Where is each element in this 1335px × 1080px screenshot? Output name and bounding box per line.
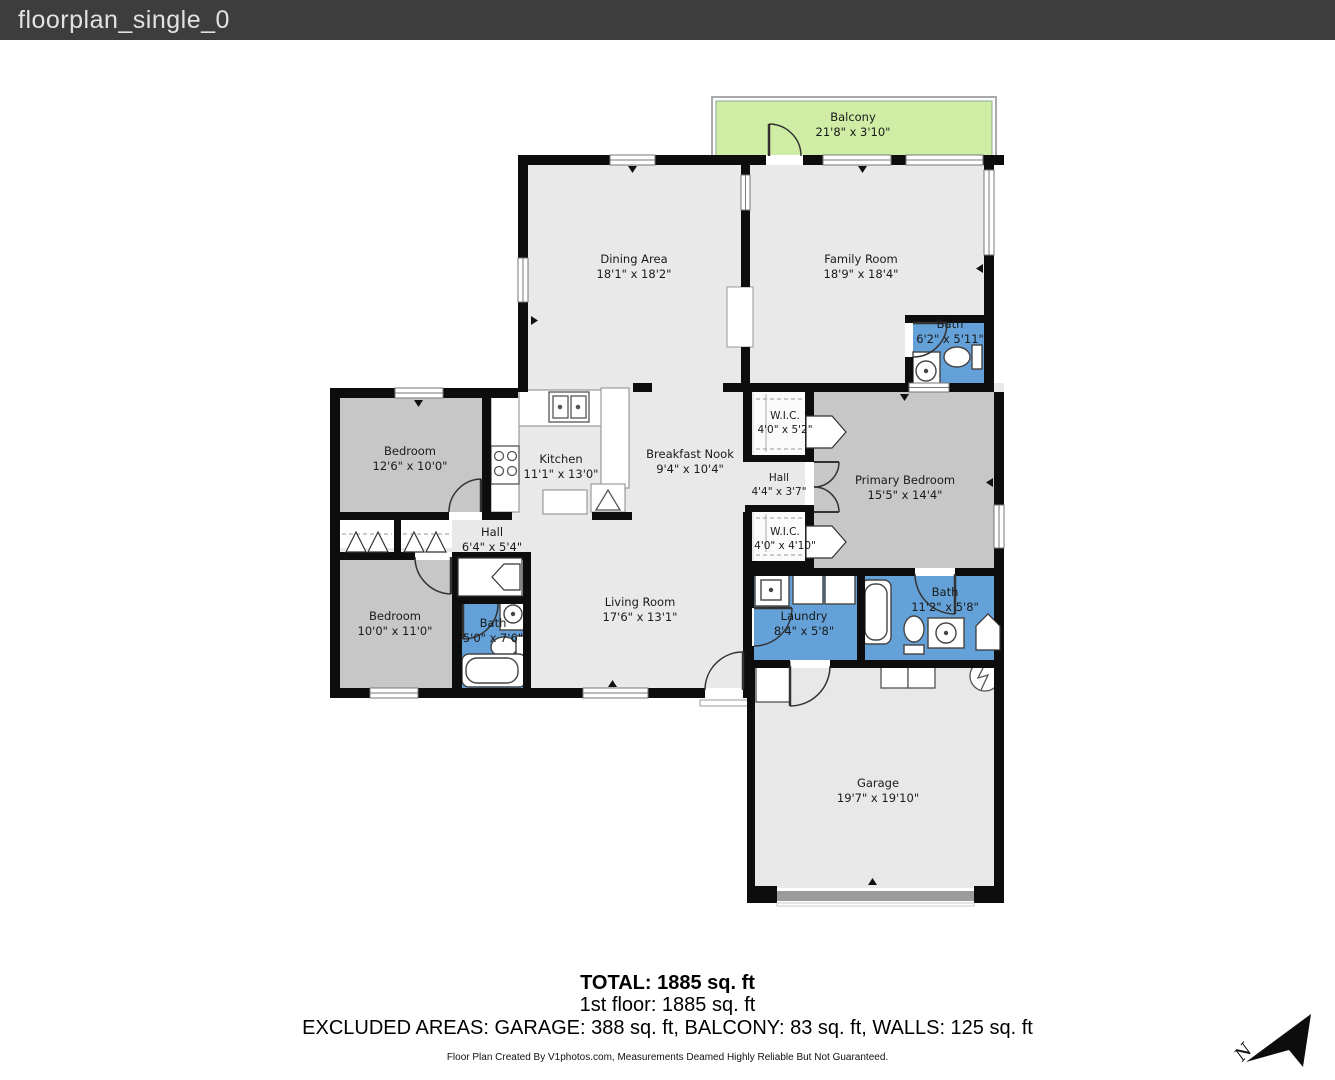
window	[741, 175, 750, 210]
stove	[491, 446, 519, 484]
summary: TOTAL: 1885 sq. ft 1st floor: 1885 sq. f…	[0, 972, 1335, 1063]
window	[395, 388, 443, 398]
floorplan-drawing: N	[0, 0, 1335, 1080]
summary-first-floor: 1st floor: 1885 sq. ft	[0, 994, 1335, 1016]
room-label-bath-right: Bath 11'2" x 5'8"	[911, 585, 979, 615]
room-label-laundry: Laundry 8'4" x 5'8"	[774, 609, 834, 639]
room-label-wic-bottom: W.I.C. 4'0" x 4'10"	[754, 526, 816, 554]
floorplan-viewer: N floorplan_single_0 Balcony 21'8" x 3'1…	[0, 0, 1335, 1080]
window	[518, 258, 528, 302]
window	[984, 170, 994, 255]
toilet	[904, 616, 924, 642]
toilet	[944, 347, 970, 367]
room-label-family: Family Room 18'9" x 18'4"	[824, 252, 899, 282]
room-label-hall-center: Hall 4'4" x 3'7"	[751, 472, 806, 500]
room-label-dining: Dining Area 18'1" x 18'2"	[597, 252, 672, 282]
window-title: floorplan_single_0	[18, 6, 230, 35]
kitchen-island	[543, 490, 587, 514]
pantry	[591, 484, 625, 512]
washer	[793, 572, 823, 604]
room-label-primary-bedroom: Primary Bedroom 15'5" x 14'4"	[855, 473, 955, 503]
porch-step	[700, 700, 748, 706]
laundry-fixtures	[755, 572, 855, 606]
window	[994, 505, 1004, 548]
summary-total: TOTAL: 1885 sq. ft	[0, 972, 1335, 994]
room-label-bath-upper: Bath 6'2" x 5'11"	[916, 317, 984, 347]
room-label-living: Living Room 17'6" x 13'1"	[603, 595, 678, 625]
room-label-bedroom-lower: Bedroom 10'0" x 11'0"	[358, 609, 433, 639]
window	[906, 155, 983, 165]
dryer	[825, 572, 855, 604]
room-label-bath-small: Bath 5'0" x 7'6"	[463, 616, 523, 646]
garage-door	[777, 891, 974, 906]
window	[583, 688, 648, 698]
window	[823, 155, 891, 165]
room-label-breakfast-nook: Breakfast Nook 9'4" x 10'4"	[646, 447, 734, 477]
window	[610, 155, 655, 165]
kitchen-sink	[549, 392, 589, 422]
room-label-balcony: Balcony 21'8" x 3'10"	[816, 110, 891, 140]
room-label-bedroom-upper: Bedroom 12'6" x 10'0"	[373, 444, 448, 474]
room-label-hall-west: Hall 6'4" x 5'4"	[462, 525, 522, 555]
room-label-garage: Garage 19'7" x 19'10"	[837, 776, 919, 806]
window	[370, 688, 418, 698]
window-titlebar: floorplan_single_0	[0, 0, 1335, 40]
room-label-wic-top: W.I.C. 4'0" x 5'2"	[757, 410, 812, 438]
room-label-kitchen: Kitchen 11'1" x 13'0"	[524, 452, 599, 482]
summary-disclaimer: Floor Plan Created By V1photos.com, Meas…	[0, 1052, 1335, 1063]
summary-excluded-areas: EXCLUDED AREAS: GARAGE: 388 sq. ft, BALC…	[0, 1016, 1335, 1040]
window	[909, 383, 949, 392]
